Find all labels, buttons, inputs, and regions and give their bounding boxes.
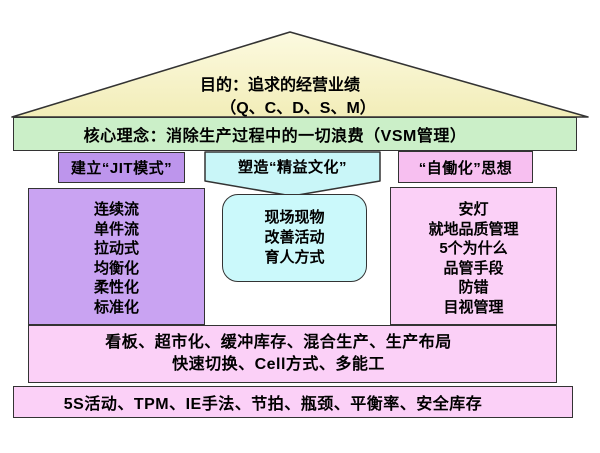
jidoka-header-label: “自働化”思想 — [419, 157, 513, 178]
jidoka-header: “自働化”思想 — [398, 151, 533, 183]
jit-item: 连续流 — [29, 200, 204, 220]
jit-pillar: 连续流 单件流 拉动式 均衡化 柔性化 标准化 — [28, 188, 205, 325]
jidoka-item: 防错 — [391, 278, 556, 298]
foundation1-line2: 快速切换、Cell方式、多能工 — [172, 354, 385, 376]
jidoka-item: 品管手段 — [391, 259, 556, 279]
jit-item: 单件流 — [29, 220, 204, 240]
foundation1-line1: 看板、超市化、缓冲库存、混合生产、生产布局 — [105, 332, 452, 354]
jidoka-item: 安灯 — [391, 200, 556, 220]
jit-item: 标准化 — [29, 298, 204, 318]
jidoka-item: 就地品质管理 — [391, 220, 556, 240]
lean-culture-box: 现场现物 改善活动 育人方式 — [222, 194, 367, 282]
jit-item: 柔性化 — [29, 278, 204, 298]
lean-culture-item: 改善活动 — [264, 228, 324, 248]
foundation-band-2: 5S活动、TPM、IE手法、节拍、瓶颈、平衡率、安全库存 — [13, 386, 573, 418]
roof-goal-line1: 目的：追求的经营业绩 — [110, 74, 450, 97]
lean-culture-item: 现场现物 — [264, 208, 324, 228]
foundation2-line1: 5S活动、TPM、IE手法、节拍、瓶颈、平衡率、安全库存 — [64, 390, 482, 414]
lean-culture-header-label: 塑造“精益文化” — [238, 156, 347, 177]
jidoka-item: 目视管理 — [391, 298, 556, 318]
jidoka-pillar: 安灯 就地品质管理 5个为什么 品管手段 防错 目视管理 — [390, 187, 557, 325]
jit-item: 拉动式 — [29, 239, 204, 259]
jidoka-item: 5个为什么 — [391, 239, 556, 259]
jit-header-label: 建立“JIT模式” — [71, 157, 172, 178]
core-concept-band: 核心理念：消除生产过程中的一切浪费（VSM管理） — [13, 117, 577, 151]
roof-goal-text: 目的：追求的经营业绩 （Q、C、D、S、M） — [110, 74, 450, 120]
foundation-band-1: 看板、超市化、缓冲库存、混合生产、生产布局 快速切换、Cell方式、多能工 — [28, 325, 557, 383]
jit-item: 均衡化 — [29, 259, 204, 279]
core-concept-text: 核心理念：消除生产过程中的一切浪费（VSM管理） — [84, 122, 467, 146]
jit-header: 建立“JIT模式” — [58, 152, 185, 183]
lean-culture-header: 塑造“精益文化” — [205, 152, 380, 181]
lean-house-diagram: 目的：追求的经营业绩 （Q、C、D、S、M） 核心理念：消除生产过程中的一切浪费… — [0, 0, 600, 453]
lean-culture-item: 育人方式 — [264, 248, 324, 268]
